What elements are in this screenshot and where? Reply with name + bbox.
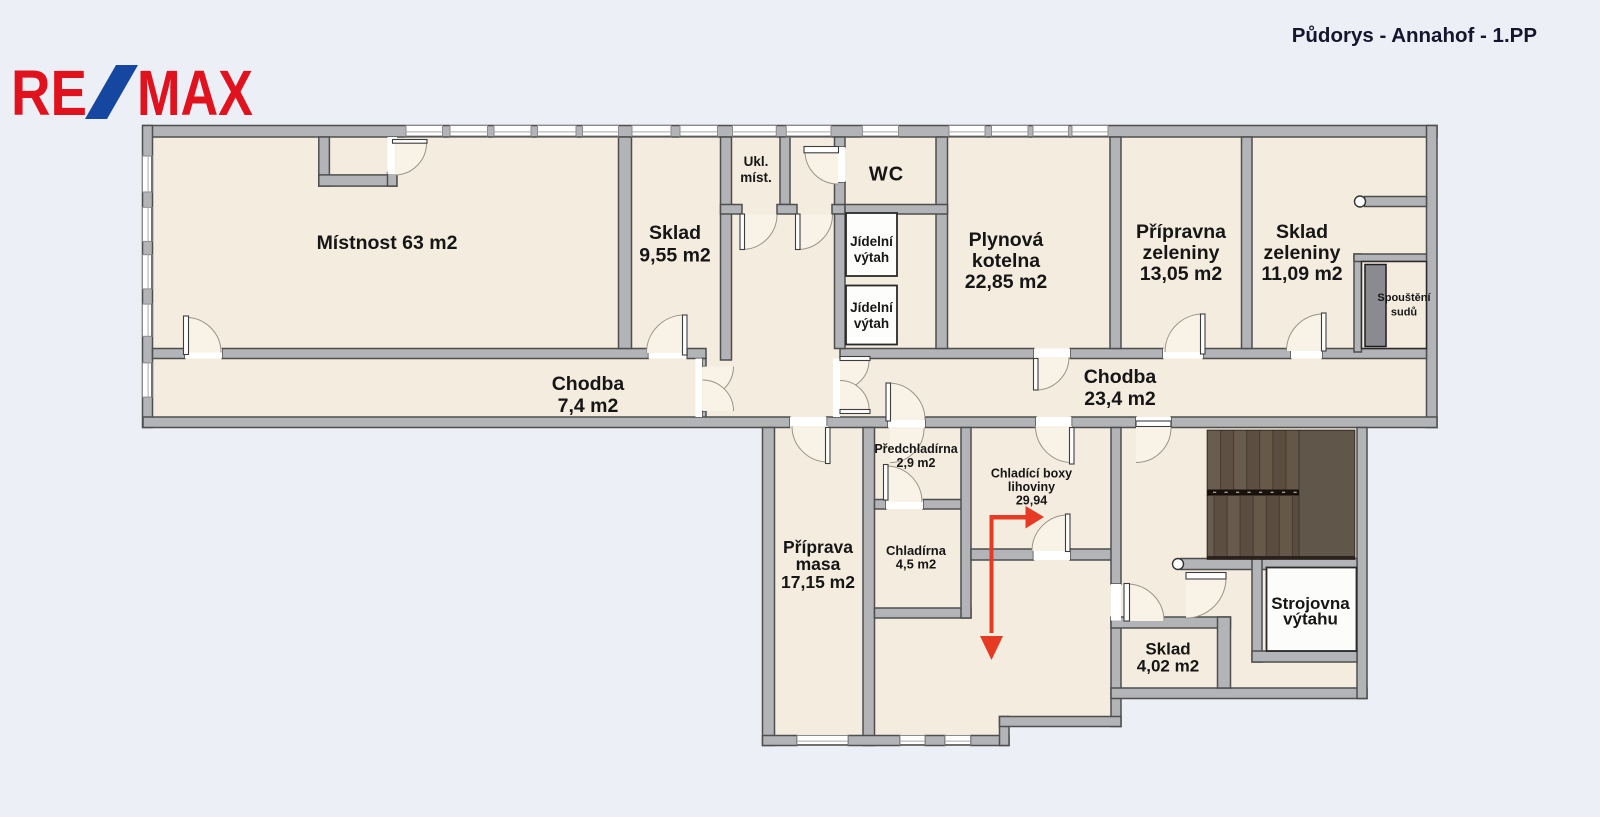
svg-text:11,09 m2: 11,09 m2 <box>1261 263 1342 285</box>
svg-text:Spouštění: Spouštění <box>1377 292 1431 304</box>
svg-text:sudů: sudů <box>1391 307 1417 319</box>
svg-text:Chladící boxy: Chladící boxy <box>991 467 1072 481</box>
svg-text:WC: WC <box>869 164 904 186</box>
svg-text:Přípravna: Přípravna <box>1136 221 1226 243</box>
svg-text:RE: RE <box>11 57 87 129</box>
svg-text:Jídelní: Jídelní <box>850 300 894 315</box>
svg-text:2,9 m2: 2,9 m2 <box>897 456 936 470</box>
svg-text:zeleniny: zeleniny <box>1143 242 1220 264</box>
svg-text:míst.: míst. <box>740 170 772 185</box>
svg-text:9,55 m2: 9,55 m2 <box>639 245 711 267</box>
svg-text:Plynová: Plynová <box>969 229 1044 251</box>
svg-text:17,15 m2: 17,15 m2 <box>781 572 855 592</box>
svg-text:23,4 m2: 23,4 m2 <box>1084 388 1156 410</box>
svg-text:masa: masa <box>796 554 841 574</box>
svg-text:22,85 m2: 22,85 m2 <box>965 271 1048 293</box>
svg-text:zeleniny: zeleniny <box>1264 242 1341 264</box>
svg-text:Chodba: Chodba <box>552 373 625 395</box>
svg-text:Místnost 63 m2: Místnost 63 m2 <box>317 232 458 254</box>
svg-text:výtahu: výtahu <box>1283 610 1338 629</box>
svg-text:Půdorys - Annahof - 1.PP: Půdorys - Annahof - 1.PP <box>1292 24 1537 47</box>
svg-text:4,02 m2: 4,02 m2 <box>1137 657 1199 676</box>
svg-text:7,4 m2: 7,4 m2 <box>558 395 619 417</box>
svg-text:13,05 m2: 13,05 m2 <box>1140 263 1223 285</box>
svg-text:MAX: MAX <box>137 57 253 129</box>
svg-text:Jídelní: Jídelní <box>850 234 894 249</box>
svg-text:Chodba: Chodba <box>1084 366 1157 388</box>
svg-text:Sklad: Sklad <box>1276 221 1328 243</box>
svg-text:výtah: výtah <box>854 250 889 265</box>
svg-text:Předchladírna: Předchladírna <box>874 442 958 456</box>
svg-text:výtah: výtah <box>854 316 889 331</box>
svg-text:Sklad: Sklad <box>649 222 701 244</box>
svg-text:lihoviny: lihoviny <box>1008 480 1055 494</box>
svg-text:29,94: 29,94 <box>1016 494 1047 508</box>
svg-text:Ukl.: Ukl. <box>744 154 769 169</box>
svg-text:4,5 m2: 4,5 m2 <box>896 557 936 572</box>
svg-text:kotelna: kotelna <box>972 250 1040 272</box>
